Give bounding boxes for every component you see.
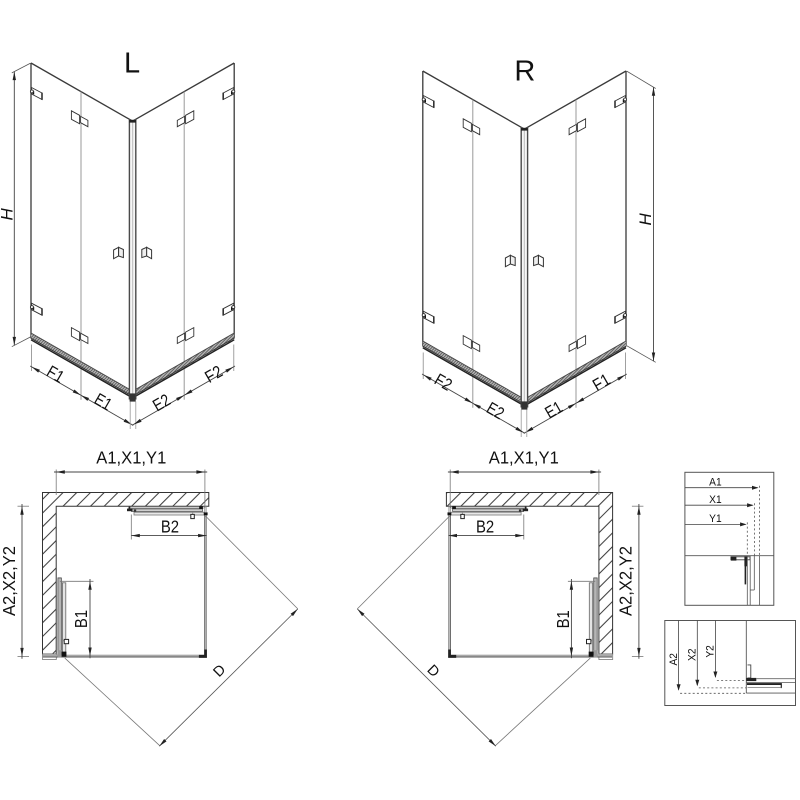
svg-text:X2: X2: [686, 648, 698, 661]
svg-text:Y2: Y2: [705, 645, 717, 658]
svg-text:Y1: Y1: [709, 513, 722, 525]
svg-text:H: H: [636, 212, 655, 225]
svg-text:L: L: [124, 48, 140, 80]
svg-text:R: R: [514, 56, 535, 88]
svg-text:A1,X1,Y1: A1,X1,Y1: [96, 447, 166, 467]
svg-text:B2: B2: [161, 516, 179, 536]
svg-text:A2,X2,Y2: A2,X2,Y2: [0, 546, 19, 616]
svg-text:B2: B2: [476, 516, 494, 536]
svg-text:A1: A1: [709, 476, 722, 488]
svg-text:A2,X2,Y2: A2,X2,Y2: [615, 546, 635, 616]
svg-text:A1,X1,Y1: A1,X1,Y1: [489, 447, 559, 467]
svg-text:B1: B1: [553, 610, 573, 628]
svg-text:X1: X1: [709, 494, 722, 506]
svg-text:B1: B1: [71, 610, 91, 628]
svg-text:H: H: [0, 207, 17, 220]
